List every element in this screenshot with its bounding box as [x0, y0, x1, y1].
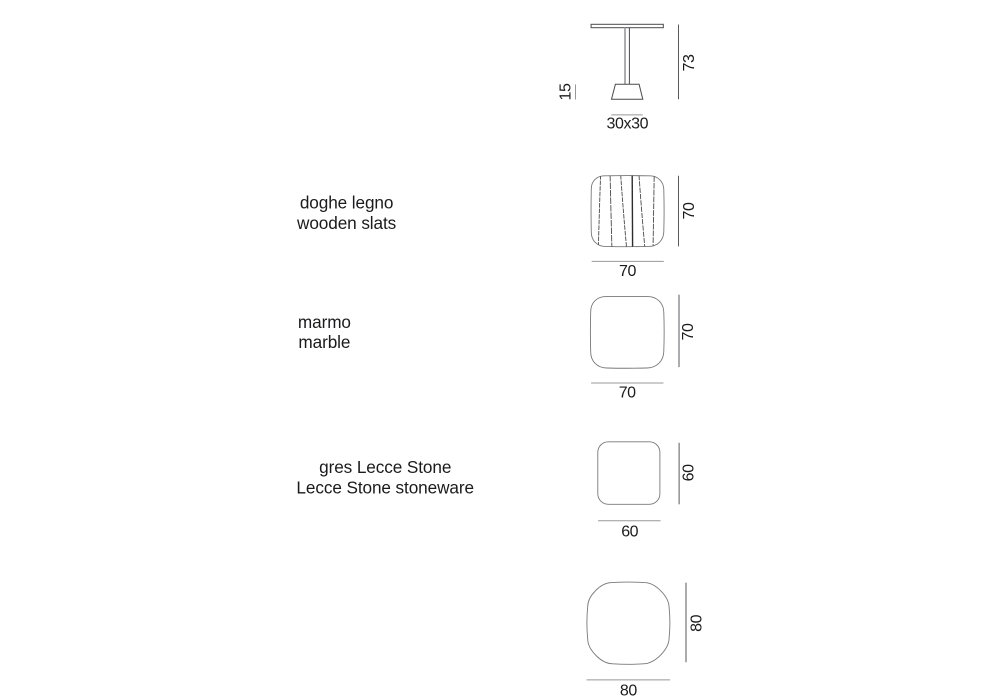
svg-text:30x30: 30x30 [606, 116, 648, 133]
svg-text:wooden slats: wooden slats [296, 213, 396, 233]
svg-text:70: 70 [619, 263, 636, 280]
svg-text:60: 60 [681, 464, 698, 481]
svg-text:gres Lecce Stone: gres Lecce Stone [319, 457, 451, 477]
svg-text:15: 15 [558, 83, 575, 100]
svg-text:80: 80 [620, 682, 637, 699]
svg-text:Lecce Stone stoneware: Lecce Stone stoneware [296, 477, 474, 497]
svg-text:73: 73 [681, 54, 698, 71]
svg-text:marmo: marmo [298, 312, 351, 332]
svg-text:70: 70 [680, 323, 697, 340]
svg-text:doghe legno: doghe legno [300, 193, 394, 213]
svg-text:70: 70 [681, 202, 698, 219]
svg-text:80: 80 [689, 614, 706, 631]
svg-text:70: 70 [619, 385, 636, 402]
svg-text:marble: marble [298, 332, 350, 352]
svg-text:60: 60 [621, 523, 638, 540]
